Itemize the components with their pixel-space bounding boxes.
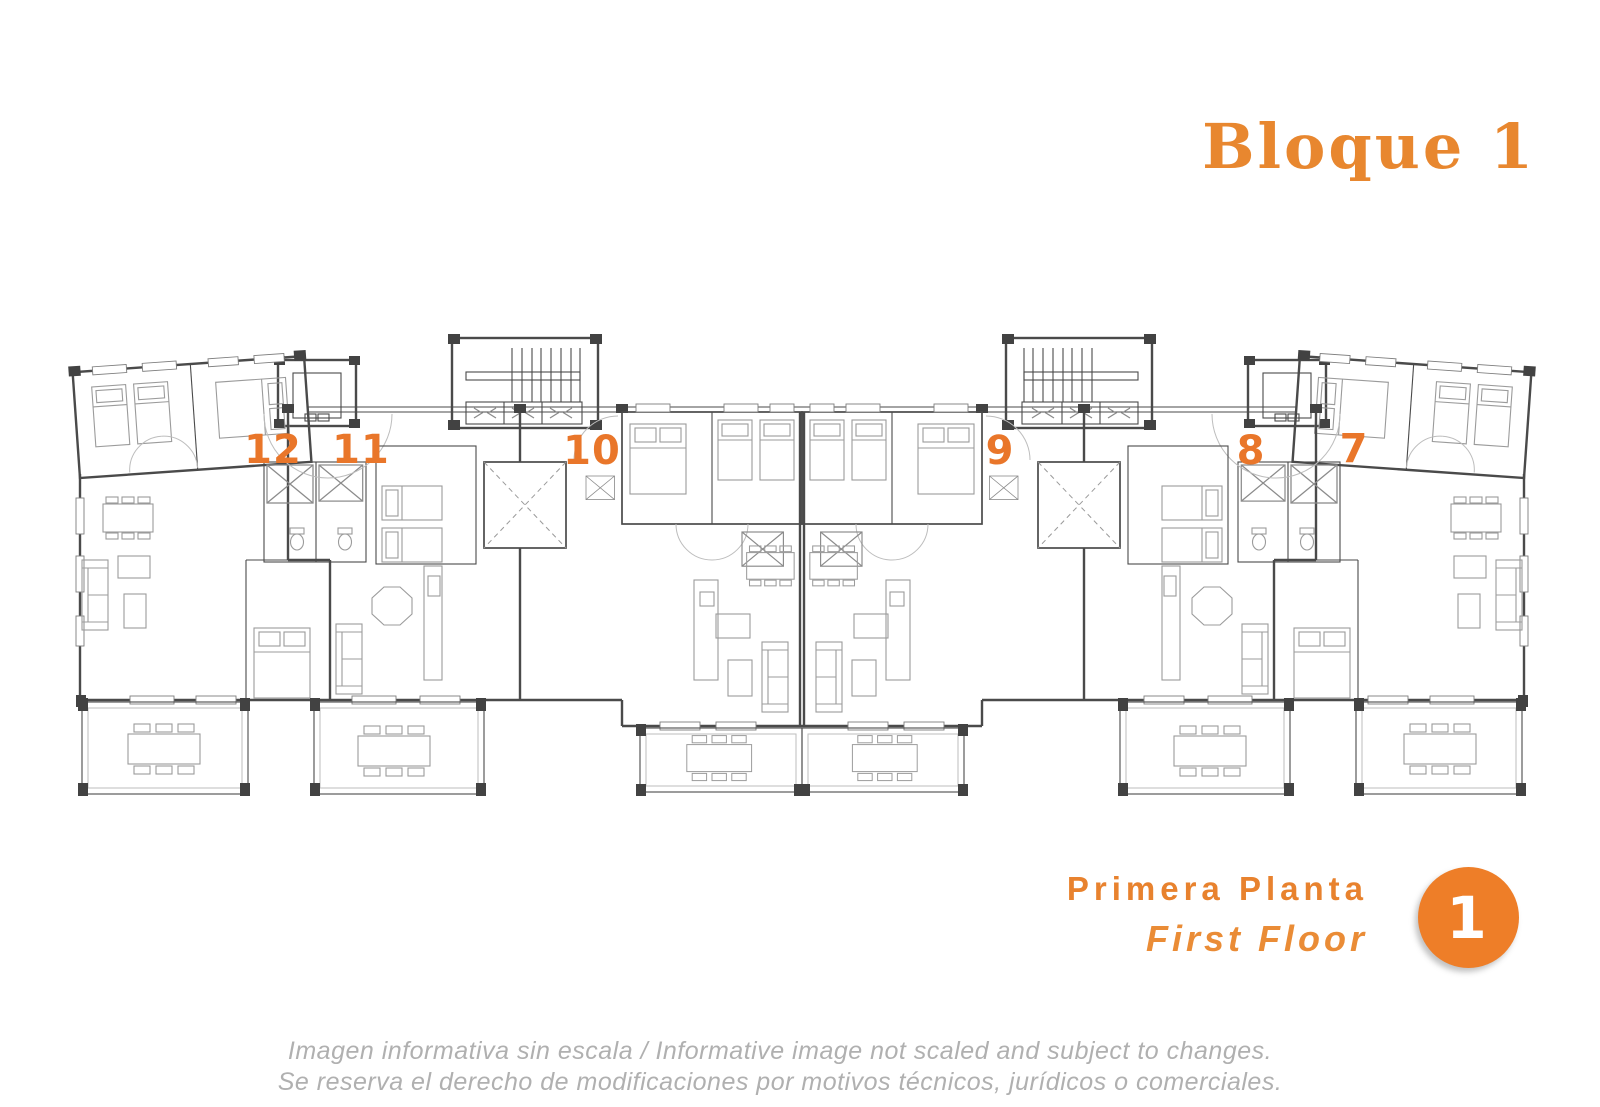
floor-number-badge: 1 (1418, 867, 1519, 968)
page: Bloque 1 12 11 10 9 8 7 Primera Planta F… (0, 0, 1600, 1107)
floor-name-es: Primera Planta (1067, 870, 1368, 908)
unit-label-8: 8 (1237, 428, 1266, 474)
disclaimer-line-1: Imagen informativa sin escala / Informat… (0, 1036, 1560, 1067)
unit-label-9: 9 (986, 428, 1015, 474)
building-title: Bloque 1 (1202, 110, 1536, 183)
unit-label-11: 11 (332, 427, 390, 473)
unit-label-10: 10 (563, 428, 621, 474)
floor-name-en: First Floor (1146, 918, 1368, 960)
unit-label-7: 7 (1340, 426, 1369, 472)
disclaimer: Imagen informativa sin escala / Informat… (0, 1036, 1560, 1098)
floor-number: 1 (1446, 884, 1486, 952)
unit-label-12: 12 (244, 427, 302, 473)
disclaimer-line-2: Se reserva el derecho de modificaciones … (0, 1067, 1560, 1098)
